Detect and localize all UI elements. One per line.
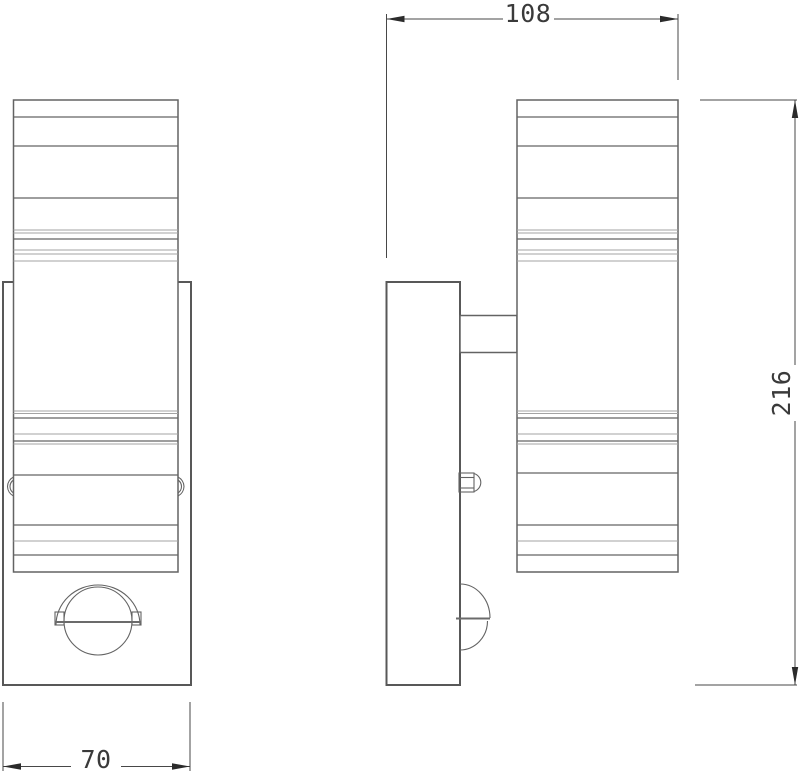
sensor-lens-profile-arc	[460, 621, 488, 650]
side-pir-sensor	[456, 584, 490, 650]
dimension-value-bottom-width: 70	[80, 745, 111, 771]
side-clip-boss	[459, 473, 481, 492]
side-mounting-arm	[460, 316, 517, 353]
arrow-left-icon	[3, 763, 21, 769]
dimension-bottom-width: 70	[3, 702, 190, 771]
arrow-down-icon	[792, 667, 798, 685]
front-lamp-body	[14, 100, 179, 572]
arrow-right-icon	[660, 16, 678, 22]
arrow-right-icon	[172, 763, 190, 769]
dimension-value-top-width: 108	[505, 0, 552, 28]
side-wall-plate	[387, 282, 461, 685]
arrow-up-icon	[792, 100, 798, 118]
technical-drawing: 108 216 70	[0, 0, 800, 771]
side-view	[387, 100, 679, 685]
clip-dome	[474, 474, 481, 492]
dimension-value-right-height: 216	[767, 370, 796, 417]
dimension-right-height: 216	[695, 100, 798, 685]
technical-drawing-canvas: 108 216 70	[0, 0, 800, 771]
front-view	[3, 100, 191, 685]
arrow-left-icon	[387, 16, 405, 22]
sensor-hood-profile-arc	[460, 584, 490, 618]
clip-bracket	[459, 473, 474, 492]
side-lamp-body	[517, 100, 678, 572]
